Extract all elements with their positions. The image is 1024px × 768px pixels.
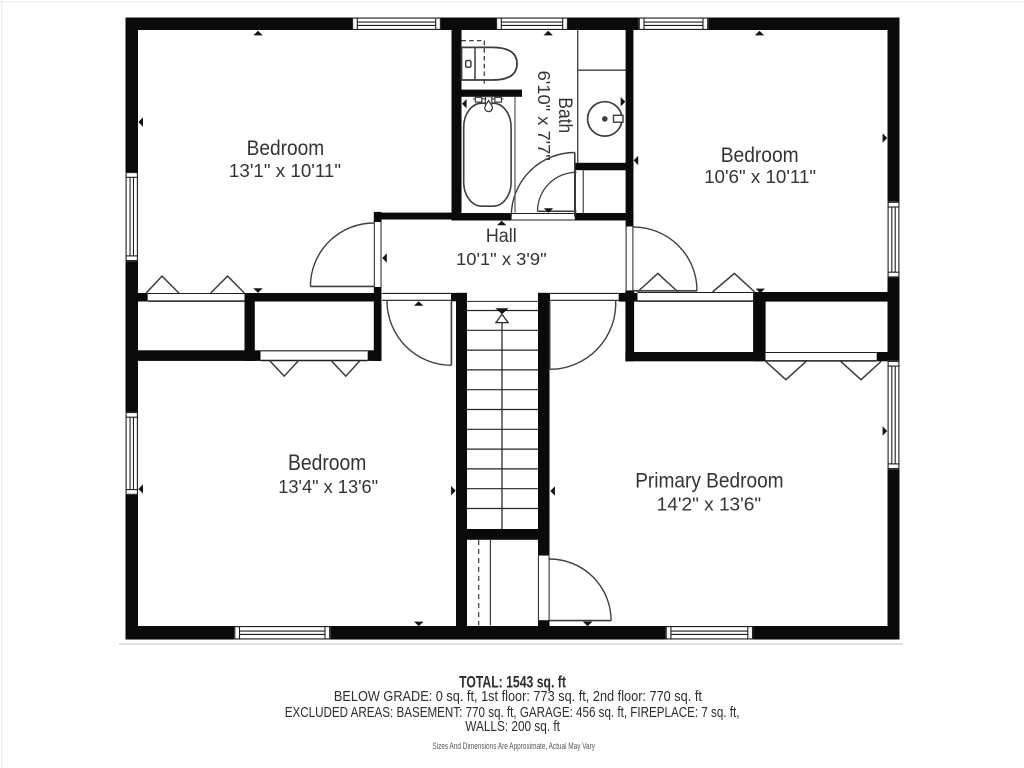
svg-text:Primary Bedroom: Primary Bedroom bbox=[635, 470, 783, 493]
svg-text:Sizes And Dimensions Are Appro: Sizes And Dimensions Are Approximate, Ac… bbox=[432, 741, 595, 751]
svg-text:Bedroom: Bedroom bbox=[288, 450, 366, 475]
svg-text:Hall: Hall bbox=[486, 226, 517, 247]
svg-text:Bedroom: Bedroom bbox=[721, 144, 799, 167]
svg-text:13'1" x 10'11": 13'1" x 10'11" bbox=[229, 161, 341, 181]
svg-text:6'10" x 7'7": 6'10" x 7'7" bbox=[534, 71, 554, 161]
svg-text:10'6" x 10'11": 10'6" x 10'11" bbox=[704, 167, 816, 187]
svg-text:Bath: Bath bbox=[554, 97, 575, 133]
svg-text:BELOW GRADE: 0 sq. ft, 1st flo: BELOW GRADE: 0 sq. ft, 1st floor: 773 sq… bbox=[334, 688, 703, 705]
svg-text:WALLS: 200 sq. ft: WALLS: 200 sq. ft bbox=[465, 718, 560, 735]
svg-text:13'4" x 13'6": 13'4" x 13'6" bbox=[278, 476, 378, 497]
svg-text:14'2" x 13'6": 14'2" x 13'6" bbox=[657, 494, 762, 514]
svg-text:10'1" x 3'9": 10'1" x 3'9" bbox=[456, 249, 547, 269]
svg-text:Bedroom: Bedroom bbox=[247, 137, 325, 160]
